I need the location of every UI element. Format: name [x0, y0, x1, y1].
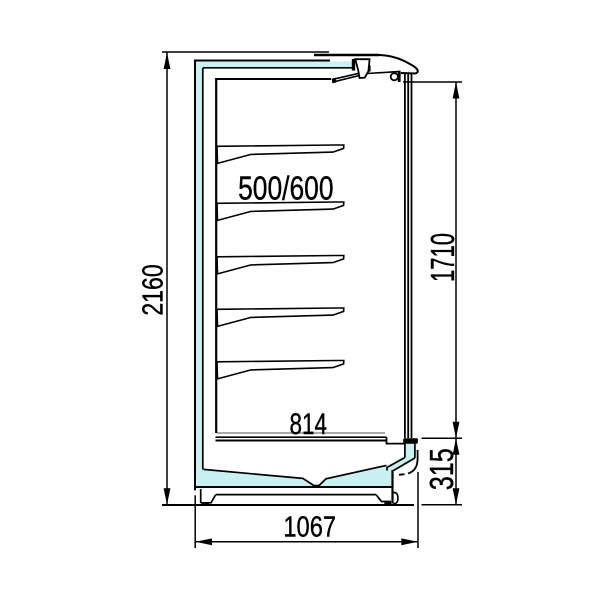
svg-text:814: 814	[289, 407, 327, 441]
svg-text:500/600: 500/600	[238, 171, 333, 207]
svg-text:1067: 1067	[283, 510, 336, 543]
svg-text:1710: 1710	[425, 233, 461, 282]
svg-text:315: 315	[424, 448, 461, 490]
svg-text:2160: 2160	[136, 264, 169, 315]
